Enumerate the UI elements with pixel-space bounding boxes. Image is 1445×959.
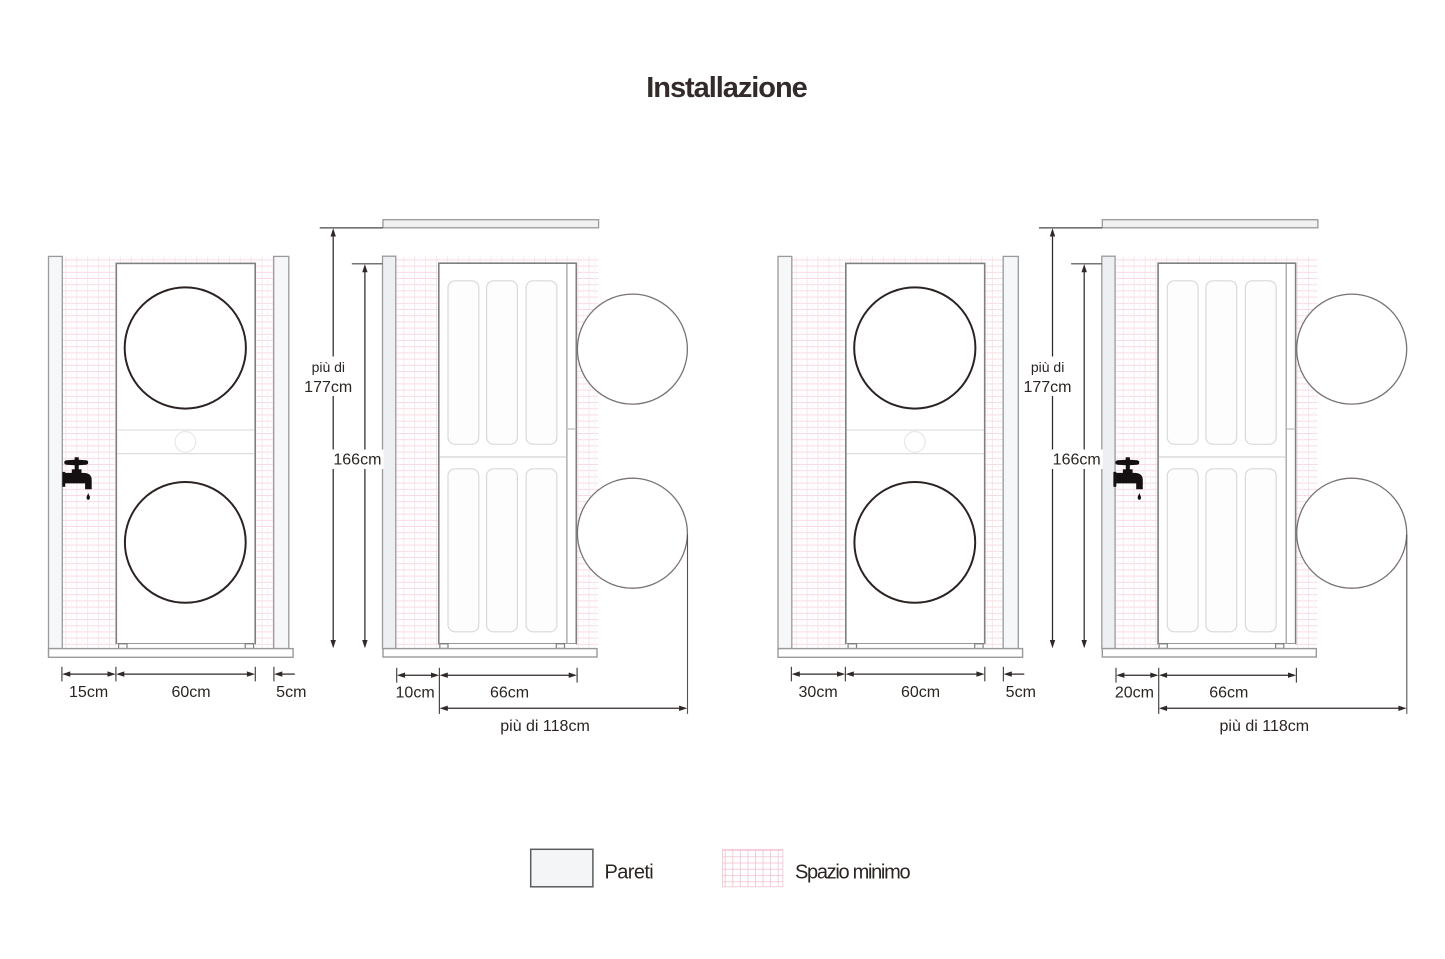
svg-text:66cm: 66cm bbox=[1209, 684, 1248, 701]
svg-text:166cm: 166cm bbox=[333, 452, 381, 469]
svg-text:5cm: 5cm bbox=[276, 684, 306, 701]
svg-text:più di 118cm: più di 118cm bbox=[1220, 718, 1310, 735]
svg-text:20cm: 20cm bbox=[1115, 684, 1154, 701]
svg-text:più di: più di bbox=[312, 359, 345, 375]
svg-text:Spazio minimo: Spazio minimo bbox=[795, 862, 910, 884]
svg-text:166cm: 166cm bbox=[1053, 452, 1101, 469]
svg-text:177cm: 177cm bbox=[1023, 379, 1071, 396]
svg-text:più di: più di bbox=[1031, 359, 1064, 375]
svg-text:Installazione: Installazione bbox=[646, 72, 807, 104]
svg-text:177cm: 177cm bbox=[304, 379, 352, 396]
svg-text:15cm: 15cm bbox=[69, 684, 108, 701]
svg-text:60cm: 60cm bbox=[901, 684, 940, 701]
svg-text:più di 118cm: più di 118cm bbox=[500, 718, 590, 735]
svg-text:5cm: 5cm bbox=[1006, 684, 1036, 701]
svg-text:66cm: 66cm bbox=[490, 684, 529, 701]
svg-text:10cm: 10cm bbox=[396, 684, 435, 701]
svg-text:60cm: 60cm bbox=[171, 684, 210, 701]
svg-text:Pareti: Pareti bbox=[605, 862, 654, 884]
svg-text:30cm: 30cm bbox=[799, 684, 838, 701]
